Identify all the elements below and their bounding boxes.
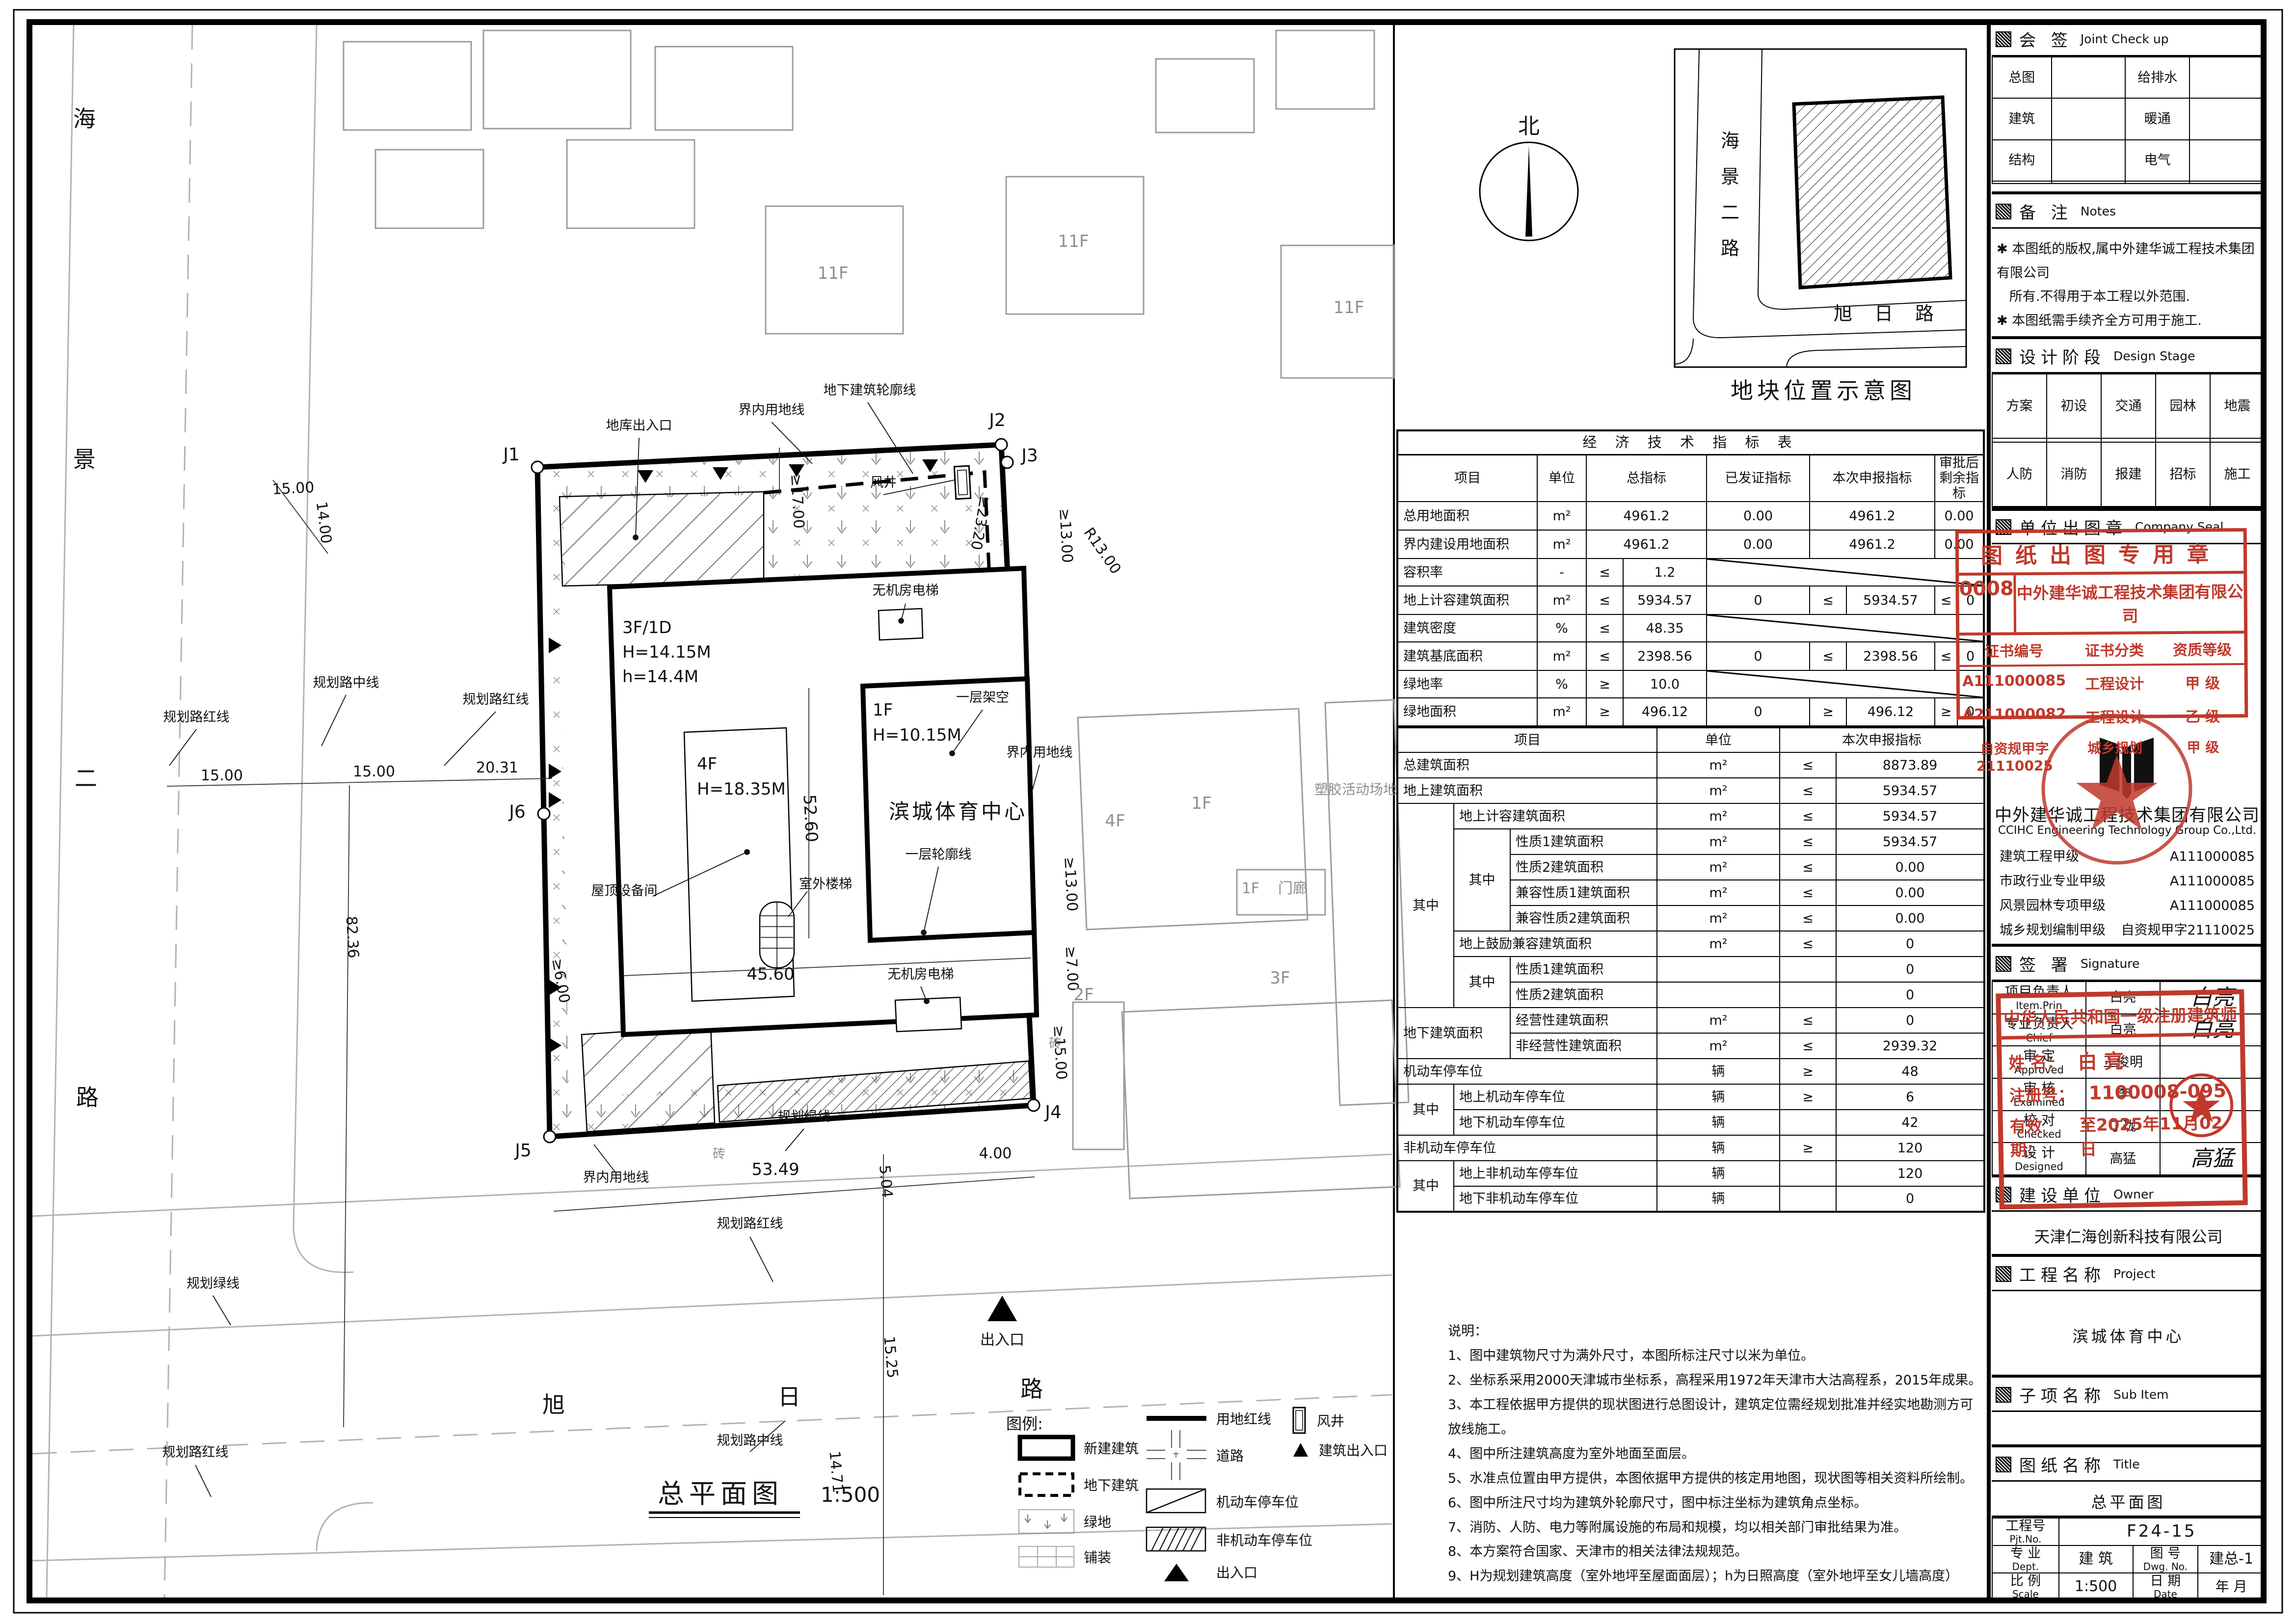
tr: 界内建设用地面积m² 4961.20.00 4961.20.00 [1397,530,1984,559]
legend-title: 图例: [1006,1411,1043,1434]
td: 性质2建筑面积 [1510,854,1657,880]
div: 证书分类 [2068,638,2161,660]
td [1707,670,1984,698]
td: m² [1657,854,1780,880]
boundary-marker [995,439,1007,451]
plan-label: 路 [1915,303,1934,324]
plan-label: 海 [1721,130,1739,152]
title-block: 会 签 Joint Check up 总图给排水 建筑暖通 结构电气 备 注 N… [1992,22,2263,1600]
line [1693,49,1699,319]
plan-label: 2F [1073,985,1094,1005]
elevator-1 [879,609,923,640]
path [1122,1000,1400,1198]
line [344,785,349,1427]
plan-label: 无机房电梯 [873,583,939,598]
td: 0.00 [1836,880,1984,905]
td [1992,181,2052,184]
entrance-icon [1145,1561,1208,1583]
td [2052,57,2126,98]
plan-label: 15.00 [353,763,395,780]
div: 中外建华诚工程技术集团有限公司 [2016,574,2244,632]
td: 0.00 [1836,854,1984,880]
plan-label: 82.36 [343,916,362,959]
div: 工程设计 [2068,671,2161,693]
rect [483,30,631,129]
path [317,1503,373,1551]
plan-label: 门廊 [1278,880,1308,897]
td [2156,438,2210,442]
td: 辆 [1657,1186,1780,1212]
plan-label: 总平面图 [658,1478,783,1509]
th: 本次申报指标 [1810,455,1935,502]
span: 机动车停车位 [1216,1491,1299,1511]
td [1780,1161,1836,1186]
stamp-row: A211000082 工程设计 乙 级 [1960,698,2244,734]
div: 专 业 [1995,1546,2056,1561]
td: 地下非机动车停车位 [1454,1186,1657,1212]
td [1780,1186,1836,1212]
td: 电气 [2125,140,2189,181]
td: 0 [1707,642,1810,670]
span: 建筑出入口 [1319,1440,1388,1460]
note-item: 7、消防、人防、电力等附属设施的布局和规模，均以相关部门审批结果为准。 [1448,1516,1983,1540]
td: ≤ [1586,642,1623,670]
td: m² [1657,752,1780,778]
plan-label: 屋顶设备间 [591,883,658,899]
td: 日 期Date [2133,1573,2198,1600]
tr: 其中地上非机动车停车位辆120 [1397,1161,1984,1186]
td [1780,982,1836,1008]
div: 备 注 Notes [1992,191,2265,229]
td: 经营性建筑面积 [1510,1008,1657,1033]
td: ≤ [1780,778,1836,803]
tbody: 项目 单位 本次申报指标 总建筑面积m²≤8873.89 地上建筑面积m²≤59… [1397,728,1984,1212]
joint-check-section: 会 签 Joint Check up 总图给排水 建筑暖通 结构电气 [1992,22,2265,184]
td [1780,957,1836,982]
th: 项目 [1397,455,1537,502]
div: Date [2136,1589,2196,1600]
plan-label: 界内用地线 [1007,745,1073,760]
plan-label: 地块位置示意图 [1731,377,1916,404]
sheet-title-section: 图纸名称 Title 总平面图 [1992,1444,2265,1521]
drawing-issue-stamp: 图纸出图专用章 0008 中外建华诚工程技术集团有限公司 证书编号 证书分类 资… [1955,528,2248,719]
td: ≥ [1780,1059,1836,1084]
legend-item-windshaft: 风井 [1289,1406,1344,1435]
td: ≥ [1810,698,1846,726]
td [1707,614,1984,642]
stamp-row: A111000085 工程设计 甲 级 [1960,665,2244,700]
plan-label: 3F/1D [622,618,671,638]
div: 会 签 Joint Check up [1992,22,2265,56]
td: 性质1建筑面积 [1510,829,1657,854]
td: 0.00 [1707,502,1810,530]
td: 地上计容建筑面积 [1397,586,1537,614]
g [1019,1546,1074,1567]
span: ✱ 本图纸需手续齐全方可用于施工. [1997,313,2202,328]
rect [344,42,471,130]
td [1780,1110,1836,1135]
td: ≤ [1780,1033,1836,1059]
td: 0 [1836,931,1984,957]
legend-item-redline: 用地红线 [1145,1409,1271,1428]
td: 4961.2 [1810,530,1935,559]
td: m² [1657,905,1780,931]
plan-label: 规划路中线 [717,1433,783,1448]
td: - [1537,559,1586,586]
tr [1992,438,2265,442]
td: 5934.57 [1623,586,1707,614]
plan-label: 二 [1721,202,1739,223]
div: 城乡规划 [2069,737,2161,773]
td: ≤ [1780,905,1836,931]
div: 自资规甲字21110025 [1960,738,2069,774]
plan-label: 52.60 [799,794,821,843]
legend-item-bike-parking: 非机动车停车位 [1145,1525,1312,1554]
span: 风景园林专项甲级 [2000,894,2106,918]
plan-label: 砖 [713,1147,725,1162]
plan-label: 景 [1721,166,1739,187]
td: 48.35 [1623,614,1707,642]
td: 2398.56 [1846,642,1935,670]
path [1758,294,1966,309]
plan-label: 界内用地线 [583,1170,649,1185]
tr: 专 业Dept. 建 筑 图 号Dwg. No. 建总-1 [1992,1545,2265,1573]
tr: 非机动车停车位辆≥120 [1397,1135,1984,1161]
div: A211000082 [1960,705,2069,728]
td: 报建 [2101,442,2156,506]
td: m² [1537,530,1586,559]
boundary-marker [538,808,550,820]
span: A111000085 [2170,869,2255,894]
td: 6 [1836,1084,1984,1110]
plan-label: 日 [778,1384,801,1410]
td: 地上机动车停车位 [1454,1084,1657,1110]
tbody: 经 济 技 术 指 标 表 项目单位 总指标已发证指标 本次申报指标审批后剩余指… [1397,430,1984,726]
plan-label: 规划路红线 [162,1445,229,1460]
section-square-icon [1996,204,2011,219]
boundary-marker-label: J5 [514,1141,532,1161]
div: 工程号 [1995,1518,2056,1534]
td [2101,438,2156,442]
plan-label: H=18.35M [697,779,786,799]
div: 图 号 [2136,1546,2196,1561]
td: 施工 [2210,442,2265,506]
tr [1992,181,2265,184]
plan-label: 20.31 [476,759,518,776]
td: m² [1657,778,1780,803]
path [2183,1088,2220,1123]
td: 专 业Dept. [1992,1545,2059,1573]
rect [1020,1437,1073,1459]
line [1758,49,1762,294]
underground-building-icon [1017,1471,1076,1498]
div: Dwg. No. [2136,1561,2196,1572]
td: m² [1537,586,1586,614]
td: 建筑基底面积 [1397,642,1537,670]
span: A111000085 [2170,894,2255,918]
td: 4961.2 [1810,502,1935,530]
td: 其中 [1397,1084,1454,1135]
div: 中华人民共和国一级注册建筑师 [2001,994,2240,1039]
note-item: 2、坐标系采用2000天津城市坐标系，高程采用1972年天津市大沽高程系，201… [1448,1368,1983,1393]
plan-label: ≥13.00 [1061,856,1081,912]
th: 单位 [1537,455,1586,502]
span: 所有.不得用于本工程以外范围. [1997,289,2190,304]
plan-label: 出入口 [980,1331,1024,1349]
rect [1073,1002,1124,1149]
tr: 总用地面积m² 4961.20.00 4961.20.00 [1397,502,1984,530]
note-item: 4、图中所注建筑高度为室外地面至面层。 [1448,1442,1983,1466]
th: 已发证指标 [1707,455,1810,502]
td [2052,98,2126,139]
circle [899,618,904,623]
rect [1276,30,1374,109]
td: 辆 [1657,1110,1780,1135]
circle [633,535,638,540]
td: 机动车停车位 [1397,1059,1657,1084]
td: 建 筑 [2059,1545,2133,1573]
td: 4961.2 [1586,530,1707,559]
td: 工程号Pjt.No. [1992,1517,2059,1545]
td [2210,438,2265,442]
td: 性质1建筑面积 [1510,957,1657,982]
div: 子项名称 Sub Item [1992,1375,2265,1412]
plan-label: H=14.15M [622,642,711,662]
wind-shaft [954,466,970,499]
td: 方案 [1992,374,2047,438]
plan-label: 5.04 [876,1164,896,1198]
plan-label: 二 [75,765,97,792]
stamp-company-row: 0008 中外建华诚工程技术集团有限公司 [1959,574,2244,636]
td: 0.00 [1935,502,1984,530]
note-item: 8、本方案符合国家、天津市的相关法律法规规范。 [1448,1540,1983,1564]
div: 市政行业专业甲级A111000085 [2000,869,2255,894]
span: 用地红线 [1216,1409,1271,1428]
subitem-section: 子项名称 Sub Item [1992,1375,2265,1449]
td: 界内建设用地面积 [1397,530,1537,559]
tr: 方案初设交通园林地震 [1992,374,2265,438]
bike-parking-icon [1145,1525,1208,1554]
path [1525,145,1532,237]
td [2189,181,2265,184]
td: 其中 [1454,829,1510,931]
site-entrance-triangle [988,1296,1017,1321]
stamp-headers: 证书编号 证书分类 资质等级 [1959,634,2244,667]
td: 总图 [1992,57,2052,98]
note-item: 1、图中建筑物尺寸为满外尺寸，本图所标注尺寸以米为单位。 [1448,1344,1983,1368]
plan-label: 3F [1270,968,1290,988]
tr: 机动车停车位辆≥48 [1397,1059,1984,1084]
td: 地上鼓励兼容建筑面积 [1454,931,1657,957]
td: 消防 [2047,442,2101,506]
plan-label: 15.25 [880,1335,901,1379]
th: 项目 [1397,728,1657,752]
plan-label: 景 [73,446,96,473]
td: 招标 [2156,442,2210,506]
tr: 比 例Scale 1:500 日 期Date 年 月 [1992,1573,2265,1600]
legend-item-entrance: 出入口 [1145,1561,1257,1583]
span: 出入口 [1216,1562,1257,1582]
legend: 图例: 新建建筑 地下建筑 绿地 铺装 用地红线 道路 机动车停车位 非机动车停 [1002,1405,1390,1567]
boundary-marker-label: J4 [1044,1102,1062,1122]
td: 4961.2 [1586,502,1707,530]
span: 签 署 [2019,952,2073,976]
td: m² [1657,1008,1780,1033]
paving-icon [1017,1544,1076,1569]
span: 备 注 [2019,199,2073,223]
car-parking-icon [1145,1487,1208,1516]
plan-label: 1F [873,700,893,720]
td: ≥ [1780,1084,1836,1110]
plan-label: 15.00 [201,767,243,784]
path [213,1296,231,1325]
td: 其中 [1397,1161,1454,1212]
plan-label: 路 [1020,1376,1043,1402]
boundary-marker-label: J1 [502,445,520,465]
redline-icon [1145,1413,1208,1423]
div: 比 例 [1995,1573,2056,1589]
td: 辆 [1657,1161,1780,1186]
circle [950,751,955,756]
remarks-text: ✱ 本图纸的版权,属中外建华诚工程技术集团有限公司 所有.不得用于本工程以外范围… [1992,229,2265,342]
section-square-icon [1996,956,2011,972]
span: Title [2113,1457,2140,1471]
td: 0 [1707,586,1810,614]
td [2189,98,2265,139]
td [2052,181,2126,184]
span: 会 签 [2019,27,2073,51]
td [1707,559,1984,586]
td: 5934.57 [1836,803,1984,829]
new-building-icon [1017,1434,1076,1462]
plan-label: 界内用地线 [739,402,805,418]
td: 园林 [2156,374,2210,438]
path [1293,1443,1308,1457]
plan-label: 53.49 [751,1160,799,1179]
plan-label: 旭 [542,1391,565,1418]
div: 工程设计 [2069,705,2161,727]
section-square-icon [1996,31,2011,47]
td: 总建筑面积 [1397,752,1657,778]
plan-label: H=10.15M [873,725,961,745]
plan-label: 海 [73,106,96,132]
td: 1.2 [1623,559,1707,586]
span: ✱ 本图纸的版权,属中外建华诚工程技术集团有限公司 [1997,241,2255,281]
span: 风井 [1317,1411,1344,1430]
td: 地上计容建筑面积 [1454,803,1657,829]
div: 甲 级 [2161,737,2245,773]
plan-label: 规划路红线 [717,1216,783,1231]
th: 单位 [1657,728,1780,752]
boundary-marker [544,1131,556,1143]
north-arrow [1480,142,1578,240]
td: 10.0 [1623,670,1707,698]
td: ≤ [1586,559,1623,586]
td: 1:500 [2059,1573,2133,1600]
path [1675,339,1693,364]
span: 城乡规划编制甲级 [2000,918,2106,943]
tr: 其中性质1建筑面积0 [1397,957,1984,982]
plan-label: 11F [1058,232,1089,251]
div: 图纸出图专用章 [1959,532,2244,576]
line [32,1154,1392,1216]
td: m² [1537,698,1586,726]
legend-item-building-entrance: 建筑出入口 [1289,1440,1388,1460]
joint-check-table: 总图给排水 建筑暖通 结构电气 [1992,56,2265,184]
rect [1156,59,1254,133]
span: 子项名称 [2019,1383,2106,1407]
td: ≥ [1586,670,1623,698]
line [164,25,192,1597]
boundary-marker-label: J6 [508,802,526,822]
tr: 地上鼓励兼容建筑面积m²≤0 [1397,931,1984,957]
td [1657,982,1780,1008]
span: Sub Item [2113,1387,2168,1402]
tr: 其中性质1建筑面积m²≤5934.57 [1397,829,1984,854]
plan-label: 4F [697,754,717,774]
path [1164,1564,1189,1581]
plan-label: 风井 [870,475,897,490]
tr: 总图给排水 [1992,57,2265,98]
td: % [1537,670,1586,698]
td [2125,181,2189,184]
path [750,1237,773,1282]
td: 地震 [2210,374,2265,438]
div: Dept. [1995,1561,2056,1572]
plan-label: 日 [1874,303,1893,324]
plan-label: 室外楼梯 [799,877,852,892]
span: Joint Check up [2081,32,2169,46]
road-icon [1145,1428,1208,1482]
rect [567,140,694,228]
plan-label: 1F [1191,794,1211,813]
line [294,25,317,1227]
design-stage-section: 设计阶段 Design Stage 方案初设交通园林地震 人防消防报建招标施工 [1992,336,2265,511]
td: m² [1537,502,1586,530]
td: 图 号Dwg. No. [2133,1545,2198,1573]
td: ≤ [1935,642,1957,670]
td: 人防 [1992,442,2047,506]
td: ≥ [1780,1135,1836,1161]
boundary-marker-label: J2 [988,410,1006,430]
boundary-marker [532,461,543,473]
tr: 项目单位 总指标已发证指标 本次申报指标审批后剩余指标 [1397,455,1984,502]
plan-label: 无机房电梯 [888,967,954,982]
tr: 建筑基底面积m² ≤2398.56 0≤ 2398.56≤0 [1397,642,1984,670]
tr: 地上建筑面积m²≤5934.57 [1397,778,1984,803]
tr: 结构电气 [1992,140,2265,181]
wind-shaft-icon [1289,1406,1309,1435]
meta-table: 工程号Pjt.No. F24-15 专 业Dept. 建 筑 图 号Dwg. N… [1992,1516,2265,1601]
owner-name: 天津仁海创新科技有限公司 [1992,1212,2265,1260]
rect [954,466,970,499]
td [2047,438,2101,442]
td: 120 [1836,1135,1984,1161]
drawing-sheet: { "plan": { "title": "总平面图", "scale": "1… [0,0,2296,1624]
rect [1020,1474,1073,1495]
architect-stamp: 中华人民共和国一级注册建筑师 姓 名：白 亮 注册号：1100008-095 有… [1996,989,2248,1210]
div: 图纸名称 Title [1992,1444,2265,1482]
td [2052,140,2126,181]
div: 资质等级 [2161,638,2244,660]
notes-block: 说明： 1、图中建筑物尺寸为满外尺寸，本图所标注尺寸以米为单位。2、坐标系采用2… [1448,1319,1983,1589]
note-item: 9、H为规划建筑高度（室外地坪至屋面面层）；h为日照高度（室外地坪至女儿墙高度） [1448,1564,1983,1589]
plan-label: 地下建筑轮廓线 [824,383,916,398]
meta-table-section: 工程号Pjt.No. F24-15 专 业Dept. 建 筑 图 号Dwg. N… [1992,1516,2265,1601]
td: 120 [1836,1161,1984,1186]
line [1147,1489,1205,1513]
td: 交通 [2101,374,2156,438]
